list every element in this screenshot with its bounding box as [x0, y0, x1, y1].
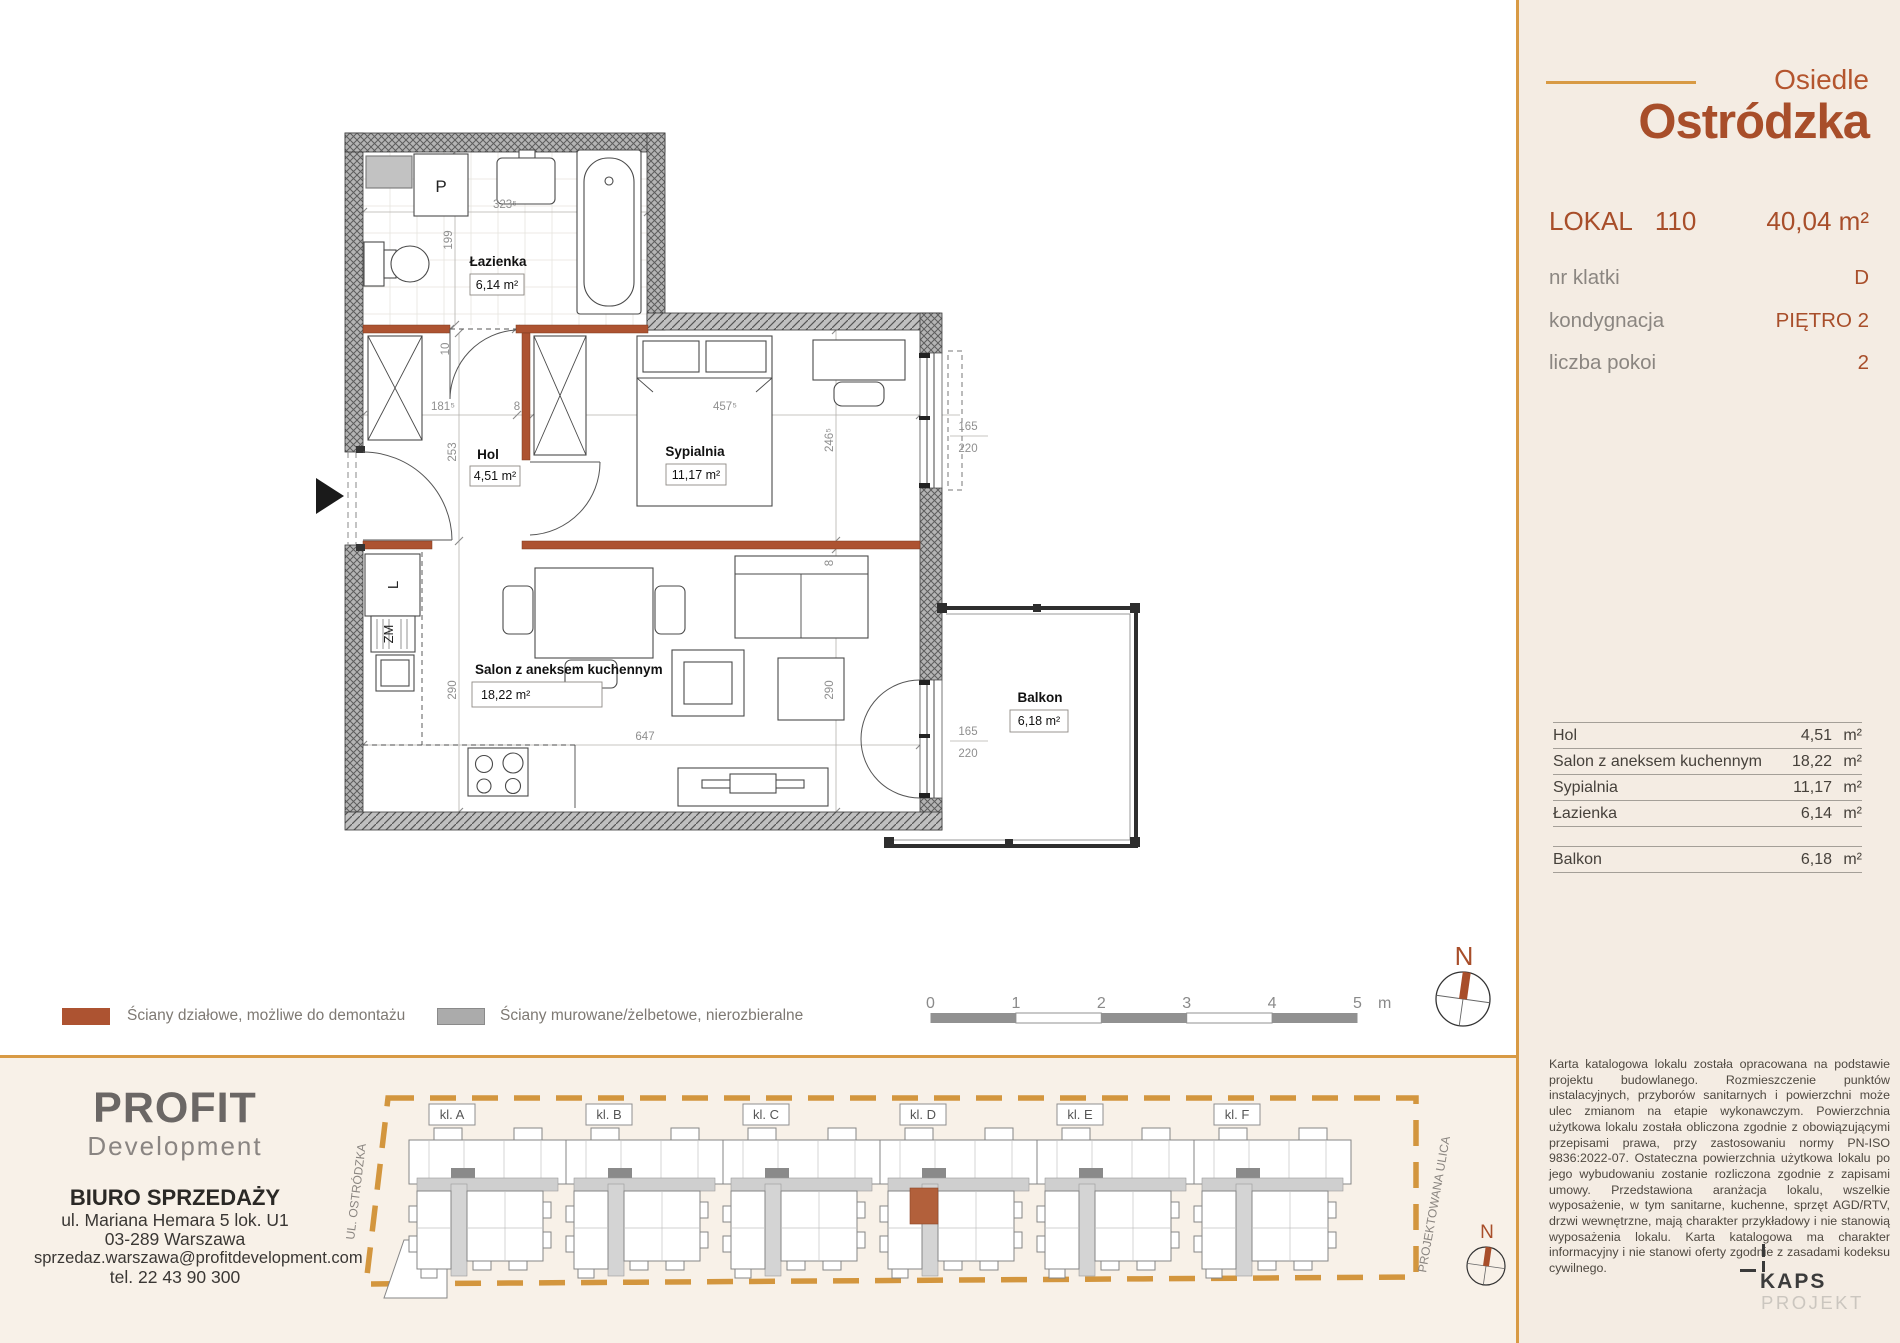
office-email: sprzedaz.warszawa@profitdevelopment.com — [34, 1249, 316, 1268]
svg-text:18,22 m²: 18,22 m² — [481, 688, 530, 702]
floor-plan: P L ZM 323⁵ 199 10 181⁵ 8 457⁵ 253 246⁵ … — [300, 118, 1200, 880]
profit-logo: PROFIT — [34, 1085, 316, 1131]
svg-text:290: 290 — [824, 680, 836, 699]
salon-furniture — [503, 556, 868, 806]
svg-text:2: 2 — [1097, 995, 1106, 1012]
svg-text:3: 3 — [1182, 995, 1191, 1012]
svg-text:kl. D: kl. D — [910, 1107, 936, 1122]
svg-text:220: 220 — [958, 443, 977, 455]
svg-text:1: 1 — [1011, 995, 1020, 1012]
sink-label: ZM — [381, 625, 396, 644]
svg-text:m: m — [1378, 995, 1391, 1012]
legend-masonry-swatch — [437, 1008, 485, 1025]
svg-text:8: 8 — [514, 401, 520, 413]
staircase-labels: kl. A kl. B kl. C kl. D kl. E kl. F — [429, 1104, 1260, 1125]
scale-bar: 0 1 2 3 4 5 m — [920, 993, 1400, 1029]
catalog-card: { "header": { "estate_prefix": "Osiedle"… — [0, 0, 1900, 1343]
svg-text:10: 10 — [440, 343, 452, 356]
compass-n-label: N — [1480, 1222, 1494, 1243]
svg-text:220: 220 — [958, 748, 977, 760]
balcony-door — [861, 680, 942, 798]
room-balkon: Balkon — [1017, 690, 1062, 705]
compass-n-label: N — [1455, 941, 1474, 971]
office-title: BIURO SPRZEDAŻY — [34, 1185, 316, 1211]
legend-partition-swatch — [62, 1008, 110, 1025]
svg-text:11,17 m²: 11,17 m² — [672, 468, 720, 482]
svg-text:457⁵: 457⁵ — [713, 401, 737, 413]
disclaimer-text: Karta katalogowa lokalu została opracowa… — [1549, 1057, 1890, 1277]
row-nr-klatki: nr klatki D — [1549, 266, 1869, 290]
table-row: Sypialnia 11,17 m² — [1553, 774, 1862, 800]
legend-masonry-walls: Ściany murowane/żelbetowe, nierozbieraln… — [437, 1007, 803, 1025]
room-area-table: Hol 4,51 m² Salon z aneksem kuchennym 18… — [1553, 722, 1862, 873]
entrance-opening — [348, 446, 365, 551]
highlighted-unit — [910, 1188, 938, 1224]
table-row: Łazienka 6,14 m² — [1553, 800, 1862, 827]
sales-office-block: PROFIT Development BIURO SPRZEDAŻY ul. M… — [34, 1085, 316, 1287]
room-salon: Salon z aneksem kuchennym — [475, 662, 663, 677]
svg-text:290: 290 — [447, 680, 459, 699]
room-sypialnia: Sypialnia — [665, 444, 725, 459]
office-address2: 03-289 Warszawa — [34, 1230, 316, 1249]
svg-text:165: 165 — [958, 726, 977, 738]
estate-prefix: Osiedle — [1549, 64, 1869, 96]
row-liczba-pokoi: liczba pokoi 2 — [1549, 351, 1869, 375]
window — [919, 351, 962, 490]
office-address1: ul. Mariana Hemara 5 lok. U1 — [34, 1211, 316, 1230]
svg-text:199: 199 — [443, 230, 455, 249]
table-row-balkon: Balkon 6,18 m² — [1553, 846, 1862, 873]
kaps-mark-icon — [1740, 1269, 1756, 1272]
svg-text:6,14 m²: 6,14 m² — [476, 278, 518, 292]
room-hol: Hol — [477, 447, 499, 462]
site-plan: UL. OSTRÓDZKA PROJEKTOWANA ULICA kl. A k… — [340, 1085, 1470, 1335]
office-phone: tel. 22 43 90 300 — [34, 1268, 316, 1287]
estate-name: Ostródzka — [1547, 94, 1869, 150]
legend-masonry-label: Ściany murowane/żelbetowe, nierozbieraln… — [500, 1007, 803, 1025]
compass-main: N — [1410, 940, 1520, 1035]
fridge-label: L — [385, 581, 402, 589]
svg-text:kl. C: kl. C — [753, 1107, 779, 1122]
svg-text:kl. A: kl. A — [440, 1107, 465, 1122]
profit-logo-sub: Development — [34, 1131, 316, 1161]
svg-text:165: 165 — [958, 421, 977, 433]
hol-wardrobes — [368, 336, 586, 455]
svg-text:323⁵: 323⁵ — [493, 199, 517, 211]
svg-text:253: 253 — [447, 442, 459, 461]
legend-partition-walls: Ściany działowe, możliwe do demontażu — [62, 1007, 405, 1025]
svg-text:246⁵: 246⁵ — [824, 428, 836, 452]
svg-text:647: 647 — [635, 731, 654, 743]
kaps-name: KAPS — [1760, 1270, 1826, 1294]
svg-text:kl. F: kl. F — [1225, 1107, 1250, 1122]
room-lazienka: Łazienka — [469, 254, 527, 269]
svg-text:4: 4 — [1268, 995, 1277, 1012]
svg-text:kl. B: kl. B — [596, 1107, 621, 1122]
kaps-mark-icon — [1762, 1244, 1765, 1257]
total-area: 40,04 m² — [1766, 206, 1869, 237]
svg-text:4,51 m²: 4,51 m² — [474, 469, 516, 483]
entry-arrow — [316, 478, 344, 514]
table-row: Hol 4,51 m² — [1553, 722, 1862, 748]
legend-partition-label: Ściany działowe, możliwe do demontażu — [127, 1007, 405, 1025]
svg-text:181⁵: 181⁵ — [431, 401, 455, 413]
lokal-row: LOKAL 110 40,04 m² — [1549, 206, 1869, 237]
svg-text:kl. E: kl. E — [1067, 1107, 1093, 1122]
svg-text:6,18 m²: 6,18 m² — [1018, 714, 1060, 728]
compass-small: N — [1440, 1205, 1535, 1295]
svg-text:8: 8 — [824, 560, 836, 566]
svg-text:0: 0 — [926, 995, 935, 1012]
lokal-label: LOKAL — [1549, 206, 1633, 237]
street-left-label: UL. OSTRÓDZKA — [342, 1143, 369, 1241]
row-kondygnacja: kondygnacja PIĘTRO 2 — [1549, 309, 1869, 333]
table-row: Salon z aneksem kuchennym 18,22 m² — [1553, 748, 1862, 774]
lokal-number: 110 — [1655, 206, 1696, 237]
washer-label: P — [435, 177, 446, 196]
kaps-sub: PROJEKT — [1761, 1292, 1864, 1314]
svg-text:5: 5 — [1353, 995, 1362, 1012]
